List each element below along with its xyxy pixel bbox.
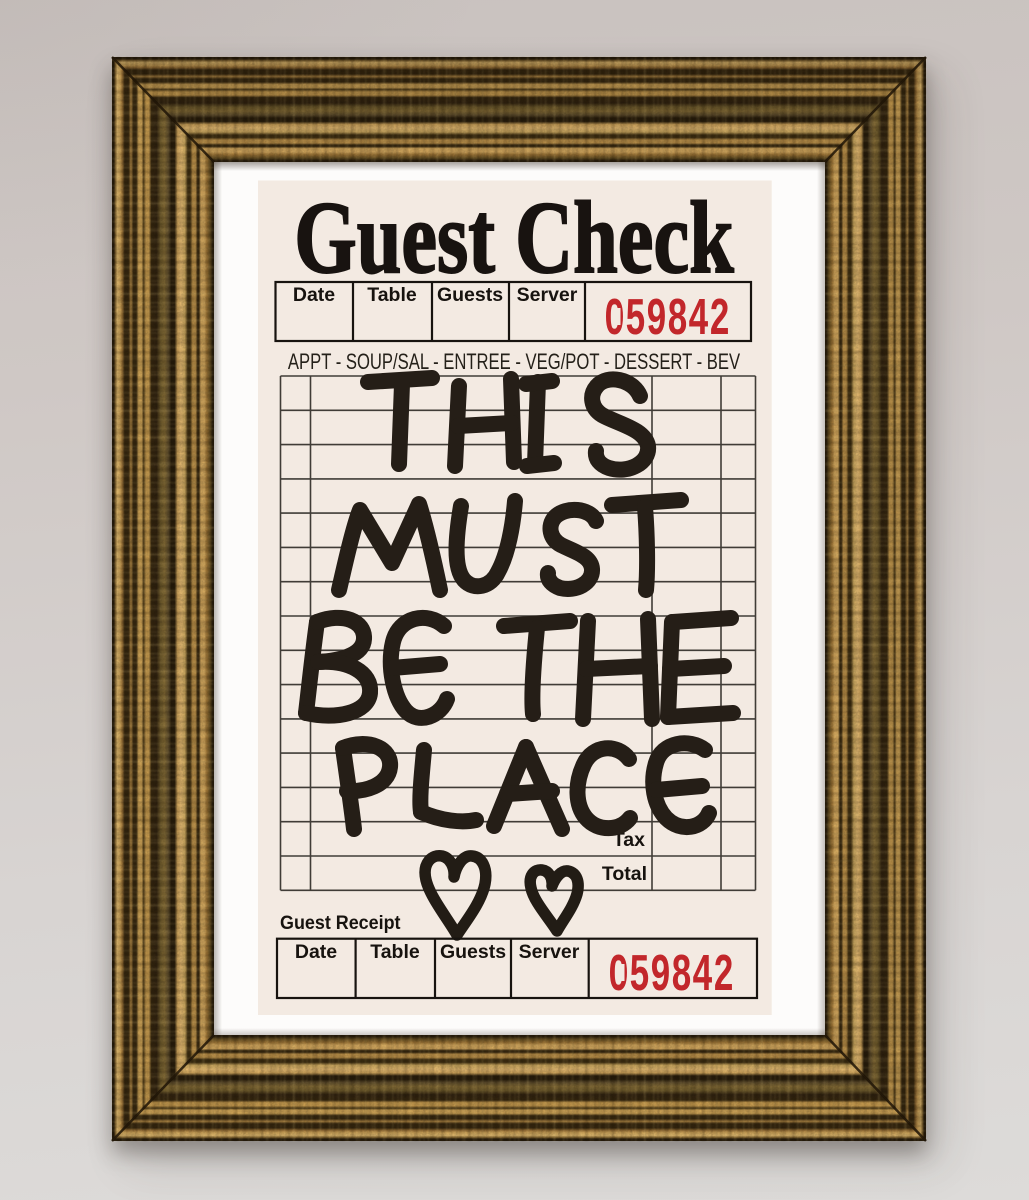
- svg-text:059842: 059842: [608, 948, 734, 1007]
- svg-text:Server: Server: [517, 284, 578, 306]
- svg-text:Total: Total: [602, 863, 647, 885]
- svg-text:Guests: Guests: [440, 941, 506, 963]
- svg-text:Guest Check: Guest Check: [294, 181, 734, 295]
- svg-text:APPT - SOUP/SAL - ENTREE - VEG: APPT - SOUP/SAL - ENTREE - VEG/POT - DES…: [288, 350, 741, 375]
- svg-text:Guest Receipt: Guest Receipt: [280, 911, 401, 933]
- svg-text:Guests: Guests: [437, 284, 503, 306]
- svg-text:Date: Date: [293, 284, 335, 306]
- svg-text:Table: Table: [367, 284, 417, 306]
- svg-text:059842: 059842: [604, 292, 730, 351]
- svg-text:Date: Date: [295, 941, 337, 963]
- svg-text:Server: Server: [519, 941, 580, 963]
- svg-text:Table: Table: [370, 941, 420, 963]
